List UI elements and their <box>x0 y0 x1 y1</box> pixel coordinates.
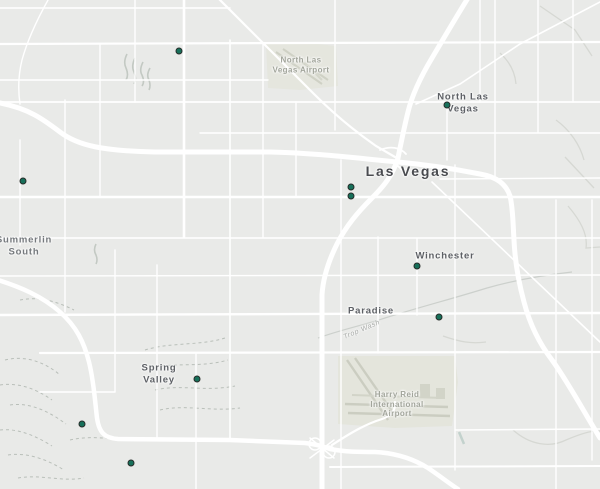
map-marker[interactable] <box>348 184 355 191</box>
map-marker[interactable] <box>444 102 451 109</box>
map-marker[interactable] <box>79 421 86 428</box>
map-marker[interactable] <box>348 193 355 200</box>
map-marker[interactable] <box>414 263 421 270</box>
map-marker[interactable] <box>194 376 201 383</box>
map-marker[interactable] <box>128 460 135 467</box>
map-marker[interactable] <box>176 48 183 55</box>
map-marker[interactable] <box>436 314 443 321</box>
map-canvas[interactable]: North Las Vegas Airport North Las Vegas … <box>0 0 600 489</box>
map-marker[interactable] <box>20 178 27 185</box>
markers-layer <box>0 0 600 489</box>
